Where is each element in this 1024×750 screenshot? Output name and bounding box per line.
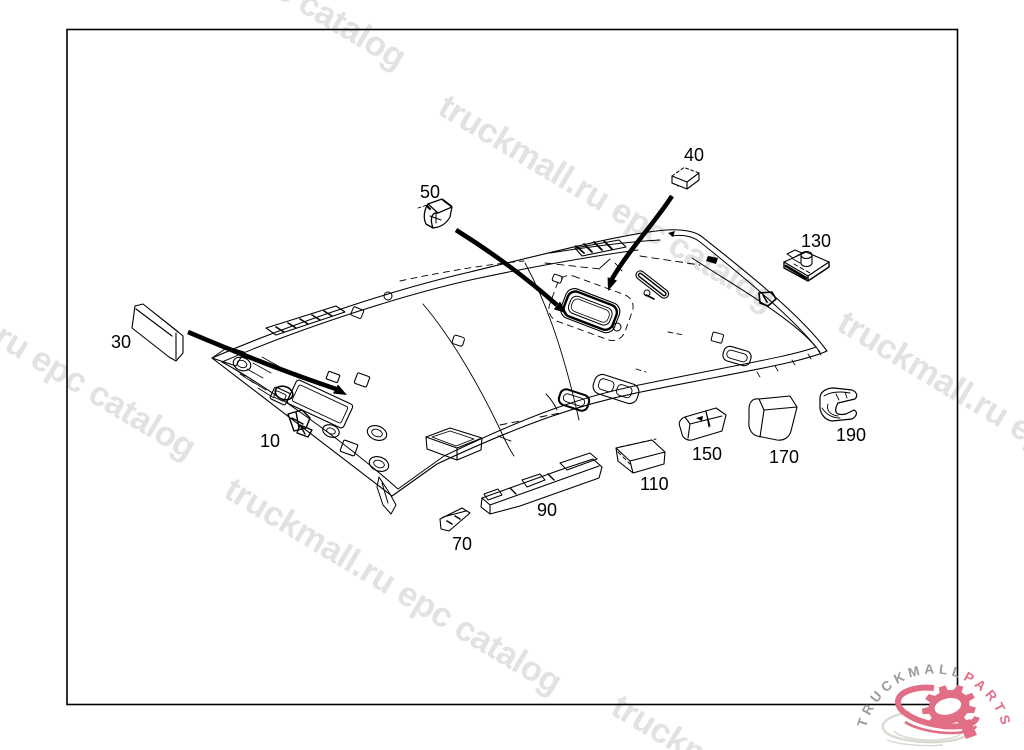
svg-text:30: 30	[111, 332, 131, 352]
svg-text:150: 150	[692, 444, 722, 464]
svg-text:130: 130	[801, 231, 831, 251]
svg-text:truckmall.ru epc catalog: truckmall.ru epc catalog	[831, 303, 1024, 534]
svg-text:40: 40	[684, 145, 704, 165]
svg-text:truckmall.ru epc catalog: truckmall.ru epc catalog	[62, 0, 413, 77]
svg-text:110: 110	[640, 474, 669, 494]
svg-text:truckmall.ru epc catalog: truckmall.ru epc catalog	[0, 235, 202, 466]
svg-text:190: 190	[836, 425, 866, 445]
svg-text:truckmall.ru epc catalog: truckmall.ru epc catalog	[432, 87, 783, 318]
svg-text:10: 10	[260, 431, 280, 451]
svg-text:truckmall.ru epc catalog: truckmall.ru epc catalog	[218, 470, 569, 701]
svg-text:90: 90	[537, 500, 557, 520]
svg-text:50: 50	[420, 182, 440, 202]
svg-text:170: 170	[769, 447, 799, 467]
svg-text:70: 70	[452, 534, 472, 554]
